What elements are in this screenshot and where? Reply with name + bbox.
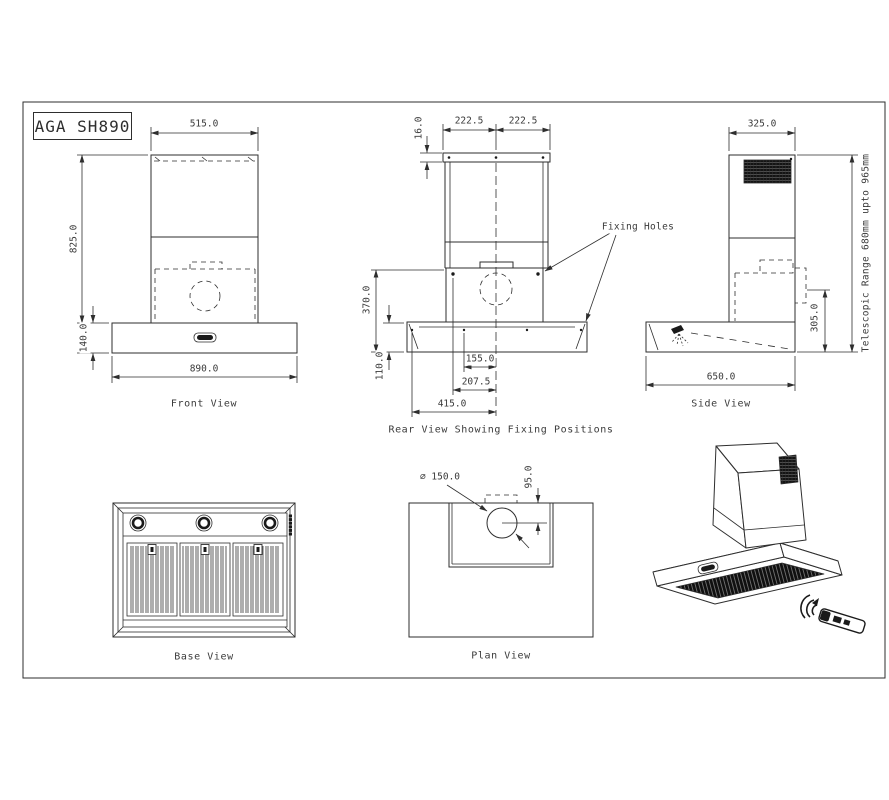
isometric-view-drawing	[653, 443, 866, 634]
vent-grille	[744, 160, 791, 183]
dim-rear-207: 207.5	[461, 378, 492, 389]
dim-front-top-width: 515.0	[189, 120, 220, 131]
dim-rear-155: 155.0	[465, 355, 496, 366]
fixing-holes-label: Fixing Holes	[601, 223, 675, 234]
plan-view-caption: Plan View	[470, 650, 532, 662]
dim-front-total-height: 825.0	[70, 224, 81, 255]
grease-filters	[127, 543, 283, 616]
telescopic-range-note: Telescopic Range 680mm upto 965mm	[862, 153, 873, 354]
front-view-caption: Front View	[170, 398, 238, 410]
side-view-drawing	[646, 127, 858, 391]
dim-rear-415: 415.0	[437, 400, 468, 411]
rear-view-drawing	[371, 124, 616, 417]
dim-rear-hole-left: 222.5	[454, 117, 485, 128]
light-icons	[130, 515, 278, 531]
side-view-caption: Side View	[690, 398, 752, 410]
base-view-caption: Base View	[173, 651, 235, 663]
dim-rear-canopy-height: 110.0	[376, 351, 387, 382]
drawing-sheet: AGA SH890 515.0 825.0 140.0 890.0 Front …	[0, 0, 889, 800]
dim-side-top-depth: 325.0	[747, 120, 778, 131]
dim-rear-panel-height: 370.0	[363, 285, 374, 316]
vent-grille-iso	[779, 455, 798, 484]
dim-plan-duct-offset: 95.0	[525, 465, 536, 490]
lamp-icon	[671, 325, 688, 346]
front-view-drawing	[77, 127, 297, 383]
title-block: AGA SH890	[33, 112, 132, 140]
dim-side-overall-depth: 650.0	[706, 373, 737, 384]
dim-plan-duct-diameter: ∅ 150.0	[419, 473, 461, 484]
model-number: AGA SH890	[35, 117, 131, 136]
remote-control-icon	[801, 595, 866, 634]
dim-front-overall-width: 890.0	[189, 365, 220, 376]
dim-rear-hole-right: 222.5	[508, 117, 539, 128]
base-view-drawing	[113, 503, 295, 637]
rear-view-caption: Rear View Showing Fixing Positions	[387, 424, 614, 436]
aga-badge	[194, 333, 216, 342]
dim-front-canopy-height: 140.0	[80, 323, 91, 354]
plan-view-drawing	[409, 485, 593, 637]
dim-rear-bracket-offset: 16.0	[415, 116, 426, 141]
dim-side-rear-height: 305.0	[811, 303, 822, 334]
